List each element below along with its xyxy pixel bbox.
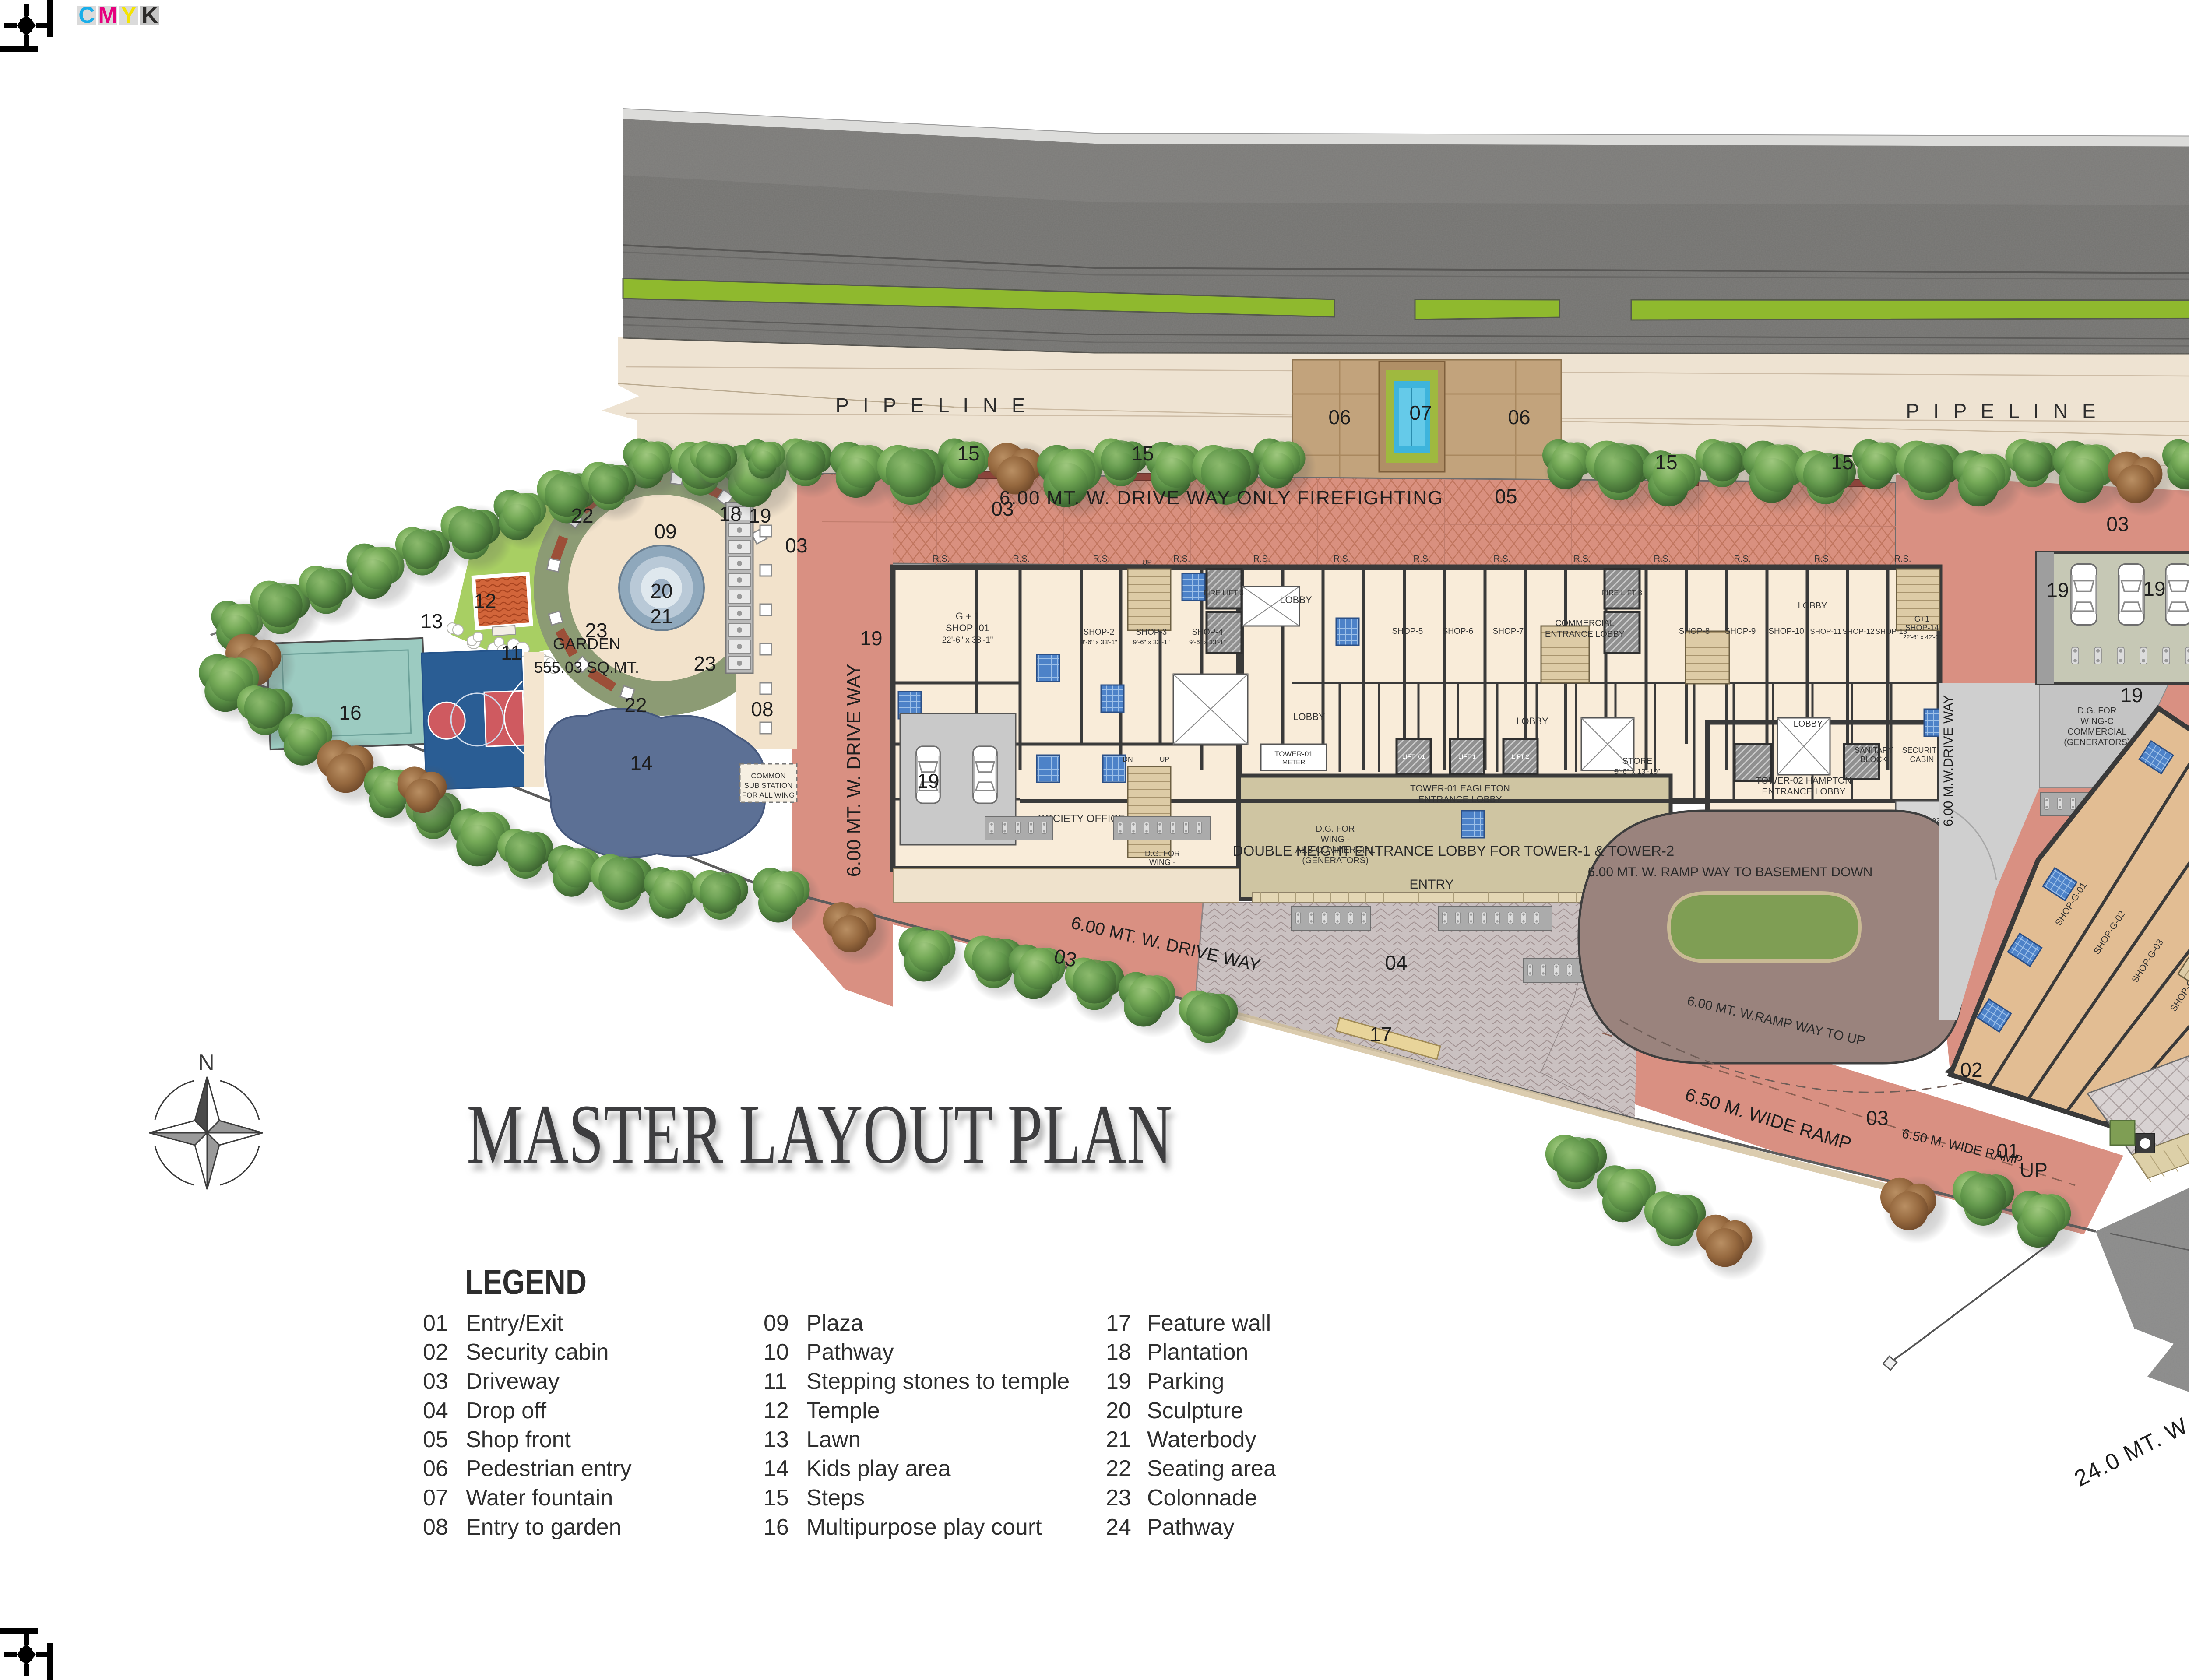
svg-text:02: 02 xyxy=(423,1339,448,1365)
svg-text:14: 14 xyxy=(764,1456,789,1481)
svg-text:03: 03 xyxy=(423,1369,448,1394)
svg-text:G+1: G+1 xyxy=(1914,615,1930,623)
svg-text:07: 07 xyxy=(423,1485,448,1511)
svg-text:R.S.: R.S. xyxy=(1574,554,1591,564)
svg-text:Pathway: Pathway xyxy=(806,1339,894,1365)
svg-text:Entry/Exit: Entry/Exit xyxy=(466,1311,563,1336)
svg-text:D.G. FOR: D.G. FOR xyxy=(1145,849,1180,858)
svg-text:13: 13 xyxy=(420,610,443,633)
svg-text:04: 04 xyxy=(1385,951,1407,974)
svg-text:LOBBY: LOBBY xyxy=(1293,711,1325,722)
svg-text:9'-6" x 33'-1": 9'-6" x 33'-1" xyxy=(1080,639,1117,646)
svg-text:R.S.: R.S. xyxy=(1013,554,1030,564)
svg-text:P I P E L I N E: P I P E L I N E xyxy=(1906,400,2100,422)
svg-text:Temple: Temple xyxy=(806,1398,880,1423)
svg-text:FIRE LIFT 3: FIRE LIFT 3 xyxy=(1602,589,1642,597)
svg-text:19: 19 xyxy=(2120,684,2143,706)
svg-text:08: 08 xyxy=(751,698,773,721)
svg-text:BLOCK: BLOCK xyxy=(1860,755,1887,764)
svg-text:COMMON: COMMON xyxy=(751,772,785,780)
svg-text:11: 11 xyxy=(501,641,522,664)
svg-text:9'-6" x 13'-10": 9'-6" x 13'-10" xyxy=(1615,767,1661,776)
svg-text:SHOP-6: SHOP-6 xyxy=(1443,627,1474,636)
svg-text:16: 16 xyxy=(764,1515,789,1540)
svg-text:SHOP-8: SHOP-8 xyxy=(1679,627,1710,636)
svg-text:17: 17 xyxy=(1369,1023,1392,1046)
svg-text:LOBBY: LOBBY xyxy=(1794,719,1823,729)
svg-text:FOR ALL WING: FOR ALL WING xyxy=(742,791,795,799)
svg-text:11: 11 xyxy=(764,1369,787,1394)
svg-text:METER: METER xyxy=(1282,759,1306,766)
svg-text:SHOP-11: SHOP-11 xyxy=(1810,627,1841,636)
svg-text:02: 02 xyxy=(1960,1058,1982,1081)
svg-text:SHOP-12: SHOP-12 xyxy=(1843,627,1875,636)
svg-text:COMMERCIAL: COMMERCIAL xyxy=(1555,619,1615,628)
svg-text:16: 16 xyxy=(339,701,361,724)
svg-text:19: 19 xyxy=(1106,1369,1131,1394)
svg-text:07: 07 xyxy=(1409,401,1432,424)
svg-text:TOWER-01: TOWER-01 xyxy=(1274,750,1313,758)
svg-text:Seating area: Seating area xyxy=(1147,1456,1276,1481)
svg-text:WING -: WING - xyxy=(1149,858,1175,867)
svg-text:Feature wall: Feature wall xyxy=(1147,1311,1271,1336)
svg-text:21: 21 xyxy=(650,605,672,628)
svg-text:LOBBY: LOBBY xyxy=(1516,716,1548,727)
svg-text:SHOP-5: SHOP-5 xyxy=(1392,627,1423,636)
svg-text:LOBBY: LOBBY xyxy=(1280,594,1312,605)
svg-text:14: 14 xyxy=(630,752,652,774)
svg-text:15: 15 xyxy=(1131,442,1154,465)
svg-text:03: 03 xyxy=(785,534,807,557)
svg-text:06: 06 xyxy=(423,1456,448,1481)
svg-text:R.S.: R.S. xyxy=(1414,554,1431,564)
svg-text:22: 22 xyxy=(624,694,647,717)
svg-text:LOBBY: LOBBY xyxy=(1798,601,1827,611)
svg-text:R.S.: R.S. xyxy=(1173,554,1190,564)
svg-text:D.G. FOR: D.G. FOR xyxy=(1316,824,1355,834)
svg-text:R.S.: R.S. xyxy=(1894,554,1911,564)
svg-text:Drop off: Drop off xyxy=(466,1398,547,1423)
svg-text:SANITARY: SANITARY xyxy=(1855,746,1893,755)
svg-text:19: 19 xyxy=(860,627,882,650)
svg-text:05: 05 xyxy=(423,1427,448,1452)
svg-text:MASTER LAYOUT PLAN: MASTER LAYOUT PLAN xyxy=(467,1087,1172,1181)
svg-text:LIFT- 01: LIFT- 01 xyxy=(1402,753,1425,760)
svg-text:6.00 M.W.DRIVE WAY: 6.00 M.W.DRIVE WAY xyxy=(1941,695,1956,826)
svg-text:Sculpture: Sculpture xyxy=(1147,1398,1243,1423)
svg-text:06: 06 xyxy=(1328,406,1351,429)
svg-text:Driveway: Driveway xyxy=(466,1369,560,1394)
svg-text:M: M xyxy=(98,3,117,28)
svg-text:19: 19 xyxy=(917,770,939,792)
svg-text:6.00 MT. W. DRIVE WAY: 6.00 MT. W. DRIVE WAY xyxy=(843,664,865,877)
svg-text:Entry to garden: Entry to garden xyxy=(466,1515,622,1540)
svg-text:17: 17 xyxy=(1106,1311,1131,1336)
svg-text:R.S.: R.S. xyxy=(1734,554,1751,564)
svg-text:P I P E L I N E: P I P E L I N E xyxy=(835,394,1029,417)
svg-text:TOWER-01 EAGLETON: TOWER-01 EAGLETON xyxy=(1410,784,1510,794)
svg-text:23: 23 xyxy=(1106,1485,1131,1511)
svg-text:Pathway: Pathway xyxy=(1147,1515,1234,1540)
svg-text:Security cabin: Security cabin xyxy=(466,1339,609,1365)
svg-text:Y: Y xyxy=(121,3,137,28)
svg-text:09: 09 xyxy=(654,520,676,543)
svg-text:SHOP-4: SHOP-4 xyxy=(1192,628,1223,637)
svg-text:18: 18 xyxy=(1106,1339,1131,1365)
svg-text:SECURITY: SECURITY xyxy=(1902,746,1942,755)
svg-text:(GENERATORS): (GENERATORS) xyxy=(2064,738,2130,747)
svg-text:ENTRANCE LOBBY: ENTRANCE LOBBY xyxy=(1762,787,1845,797)
svg-text:SHOP-13: SHOP-13 xyxy=(1876,627,1907,636)
svg-text:SHOP-2: SHOP-2 xyxy=(1084,628,1115,637)
svg-text:Steps: Steps xyxy=(806,1485,865,1511)
svg-text:19: 19 xyxy=(2046,579,2069,601)
svg-text:ENTRANCE LOBBY: ENTRANCE LOBBY xyxy=(1545,629,1625,639)
svg-text:R.S.: R.S. xyxy=(1253,554,1270,564)
svg-text:21: 21 xyxy=(1106,1427,1131,1452)
svg-text:24: 24 xyxy=(1106,1515,1131,1540)
svg-text:15: 15 xyxy=(1655,451,1677,474)
svg-text:6.00 MT. W. DRIVE WAY ONLY FIR: 6.00 MT. W. DRIVE WAY ONLY FIREFIGHTING xyxy=(999,487,1443,509)
svg-text:22'-6" x 33'-1": 22'-6" x 33'-1" xyxy=(942,636,993,645)
svg-text:TOWER-02 HAMPTON: TOWER-02 HAMPTON xyxy=(1756,776,1852,786)
svg-text:6.00 MT. W. RAMP WAY TO BASE: 6.00 MT. W. RAMP WAY TO BASEMENT DOWN xyxy=(1588,865,1873,879)
svg-text:K: K xyxy=(141,3,158,28)
svg-text:05: 05 xyxy=(1495,485,1517,508)
svg-text:STORE: STORE xyxy=(1622,756,1653,766)
svg-text:DOUBLE HEIGHT ENTRANCE LOBBY F: DOUBLE HEIGHT ENTRANCE LOBBY FOR TOWER-1… xyxy=(1233,843,1675,859)
svg-text:22: 22 xyxy=(571,504,593,527)
svg-text:COMMERCIAL: COMMERCIAL xyxy=(2067,727,2127,737)
svg-text:R.S.: R.S. xyxy=(1654,554,1671,564)
svg-text:CABIN: CABIN xyxy=(1910,755,1934,764)
svg-text:UP: UP xyxy=(2020,1159,2048,1181)
svg-text:UP: UP xyxy=(1160,756,1169,763)
svg-text:Lawn: Lawn xyxy=(806,1427,861,1452)
svg-text:R.S.: R.S. xyxy=(1334,554,1351,564)
svg-text:SHOP-9: SHOP-9 xyxy=(1725,627,1756,636)
svg-text:Kids play area: Kids play area xyxy=(806,1456,951,1481)
svg-text:LIFT 1: LIFT 1 xyxy=(1458,753,1476,760)
svg-text:LIFT 2: LIFT 2 xyxy=(1512,753,1529,760)
svg-text:SHOP-10: SHOP-10 xyxy=(1768,627,1804,636)
svg-text:12: 12 xyxy=(474,590,496,612)
svg-text:Plaza: Plaza xyxy=(806,1311,863,1336)
svg-text:08: 08 xyxy=(423,1515,448,1540)
svg-text:06: 06 xyxy=(1508,406,1530,429)
svg-text:C: C xyxy=(78,3,95,28)
svg-text:09: 09 xyxy=(764,1311,789,1336)
svg-text:Waterbody: Waterbody xyxy=(1147,1427,1256,1452)
svg-text:R.S.: R.S. xyxy=(1494,554,1511,564)
svg-text:SHOP-14: SHOP-14 xyxy=(1905,623,1939,632)
svg-text:Stepping stones to temple: Stepping stones to temple xyxy=(806,1369,1070,1394)
svg-text:555.03 SQ.MT.: 555.03 SQ.MT. xyxy=(534,658,639,676)
svg-text:9'-6" x 33'-1": 9'-6" x 33'-1" xyxy=(1133,639,1170,646)
svg-text:12: 12 xyxy=(764,1398,789,1423)
svg-text:Pedestrian entry: Pedestrian entry xyxy=(466,1456,632,1481)
svg-text:19: 19 xyxy=(2143,577,2165,600)
svg-text:04: 04 xyxy=(423,1398,448,1423)
svg-text:SUB STATION: SUB STATION xyxy=(744,781,793,790)
svg-text:20: 20 xyxy=(650,580,672,602)
svg-text:Plantation: Plantation xyxy=(1147,1339,1248,1365)
svg-text:GARDEN: GARDEN xyxy=(553,635,620,653)
svg-text:Water fountain: Water fountain xyxy=(466,1485,613,1511)
svg-text:18: 18 xyxy=(719,503,741,525)
svg-text:22'-6" x 42'-0": 22'-6" x 42'-0" xyxy=(1903,633,1941,640)
svg-text:15: 15 xyxy=(764,1485,789,1511)
svg-text:G + 1: G + 1 xyxy=(956,611,979,622)
svg-text:ENTRY: ENTRY xyxy=(1409,877,1453,892)
svg-text:03: 03 xyxy=(1866,1107,1888,1129)
svg-text:13: 13 xyxy=(764,1427,789,1452)
svg-text:Colonnade: Colonnade xyxy=(1147,1485,1257,1511)
svg-text:Shop front: Shop front xyxy=(466,1427,571,1452)
svg-text:D.G. FOR: D.G. FOR xyxy=(2078,706,2117,716)
svg-text:Multipurpose play court: Multipurpose play court xyxy=(806,1515,1042,1540)
svg-text:03: 03 xyxy=(2106,513,2129,535)
svg-text:SHOP-3: SHOP-3 xyxy=(1136,628,1167,637)
svg-text:ENTRANCE LOBBY: ENTRANCE LOBBY xyxy=(1418,794,1502,805)
svg-text:22: 22 xyxy=(1106,1456,1131,1481)
svg-text:N: N xyxy=(198,1050,215,1075)
svg-text:UP: UP xyxy=(1142,559,1152,566)
svg-text:R.S.: R.S. xyxy=(1093,554,1110,564)
svg-text:10: 10 xyxy=(764,1339,789,1365)
svg-text:20: 20 xyxy=(1106,1398,1131,1423)
svg-text:19: 19 xyxy=(749,504,771,527)
svg-text:23: 23 xyxy=(693,652,716,675)
svg-text:15: 15 xyxy=(957,442,979,465)
svg-text:SHOP -01: SHOP -01 xyxy=(946,622,989,633)
svg-text:WING-C: WING-C xyxy=(2080,717,2114,726)
svg-text:R.S.: R.S. xyxy=(933,554,950,564)
svg-text:R.S.: R.S. xyxy=(1814,554,1831,564)
svg-text:LEGEND: LEGEND xyxy=(465,1262,587,1301)
svg-text:FIRE LIFT 3: FIRE LIFT 3 xyxy=(1204,589,1244,597)
svg-text:01: 01 xyxy=(423,1311,448,1336)
svg-text:Parking: Parking xyxy=(1147,1369,1224,1394)
svg-text:9'-6" x 33'-1": 9'-6" x 33'-1" xyxy=(1189,639,1226,646)
svg-text:15: 15 xyxy=(1831,451,1853,474)
svg-text:DN: DN xyxy=(1123,756,1133,763)
svg-text:SHOP-7: SHOP-7 xyxy=(1493,627,1524,636)
